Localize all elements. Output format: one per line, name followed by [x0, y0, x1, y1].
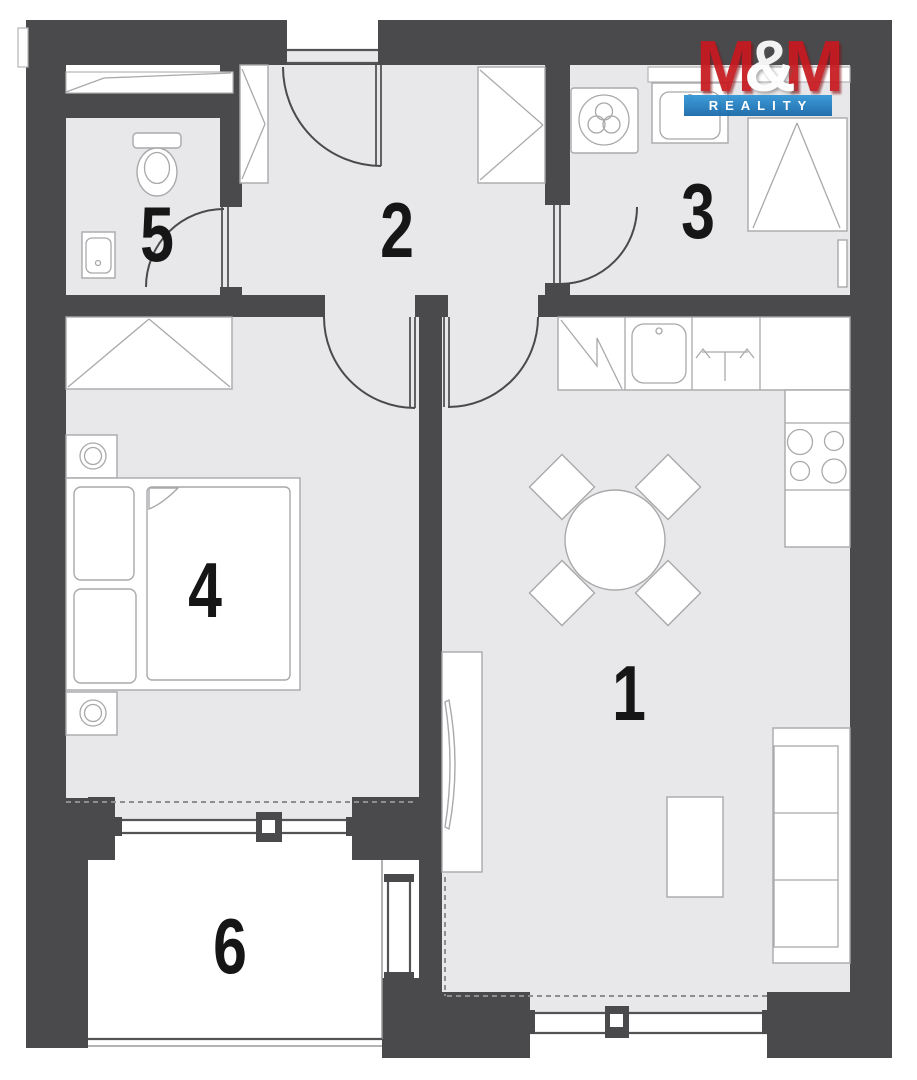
room1-window-zone [530, 1012, 767, 1058]
room-label-1-text: 1 [612, 650, 646, 737]
wall-above-room5 [66, 93, 233, 118]
nightstand-bottom [66, 692, 117, 735]
hallway-wardrobe [478, 67, 545, 183]
pier-balcony-bottom-right [382, 978, 442, 1058]
exterior-box-marker [18, 28, 28, 67]
dining-table [565, 490, 665, 590]
coffee-table [667, 797, 723, 897]
room1-window-jamb-right [762, 1010, 771, 1034]
room-label-4: 4 [188, 547, 222, 634]
room1-window-mullion-glass [610, 1014, 623, 1027]
pier-balcony-window-right [352, 797, 419, 860]
wall-mid-right [538, 295, 892, 317]
shower [748, 118, 847, 231]
pier-room1-window-right [767, 992, 892, 1058]
balcony-side-window-cap-bottom [384, 972, 414, 980]
mm-reality-logo: M&M REALITY [681, 42, 857, 118]
floor-doorway-room1 [448, 295, 538, 317]
pillow-top [74, 487, 134, 580]
room-label-2-text: 2 [380, 187, 414, 274]
room-label-3-text: 3 [681, 168, 715, 255]
wall-room2-room3-lower [545, 283, 570, 317]
room4-window-zone [115, 820, 352, 860]
bedroom-wardrobe [66, 317, 232, 389]
wall-left [26, 65, 66, 798]
pillow-bottom [74, 589, 136, 683]
room-label-5: 5 [140, 191, 174, 278]
room-label-2: 2 [380, 187, 414, 274]
tv-cabinet [442, 652, 482, 872]
wall-room4-room1 [419, 295, 442, 1058]
pier-balcony-window-left [88, 797, 115, 860]
room-label-6-text: 6 [213, 903, 247, 990]
room-label-4-text: 4 [188, 547, 222, 634]
floor-plan-page: 1 2 3 4 5 6 M&M REALITY [0, 0, 917, 1080]
room-label-5-text: 5 [140, 191, 174, 278]
room1-window-jamb-left [526, 1010, 535, 1034]
hallway-tall-cabinet [240, 65, 268, 183]
floor-doorway-room4 [325, 295, 415, 317]
balcony-side-window-cap-top [384, 874, 414, 882]
room4-window-jamb-left [112, 817, 122, 836]
wall-right [850, 20, 892, 1058]
wall-room5-room2-lower [220, 287, 242, 317]
entrance-threshold-floor [287, 50, 378, 63]
nightstand-top [66, 435, 117, 478]
floor-plan-drawing: 1 2 3 4 5 6 [0, 0, 917, 1080]
toilet-bowl [137, 148, 177, 196]
room-label-6: 6 [213, 903, 247, 990]
logo-wordmark: M&M [681, 31, 857, 103]
floor-doorway-room3 [545, 205, 570, 283]
wall-mid-left [26, 295, 325, 317]
towel-radiator [838, 240, 847, 287]
pier-room1-window-left [442, 992, 530, 1058]
logo-ampersand: & [744, 27, 794, 107]
room4-window-jamb-right [346, 817, 356, 836]
wall-room2-room3-upper [545, 63, 570, 205]
room4-window-mullion-glass [262, 820, 275, 833]
kitchen-counter-top [558, 317, 850, 390]
room-label-3: 3 [681, 168, 715, 255]
kitchen-counter-right [785, 390, 850, 547]
room-label-1: 1 [612, 650, 646, 737]
floor-doorway-room5 [220, 207, 242, 287]
toilet-cistern [133, 133, 181, 148]
wall-balcony-left [26, 798, 88, 1048]
